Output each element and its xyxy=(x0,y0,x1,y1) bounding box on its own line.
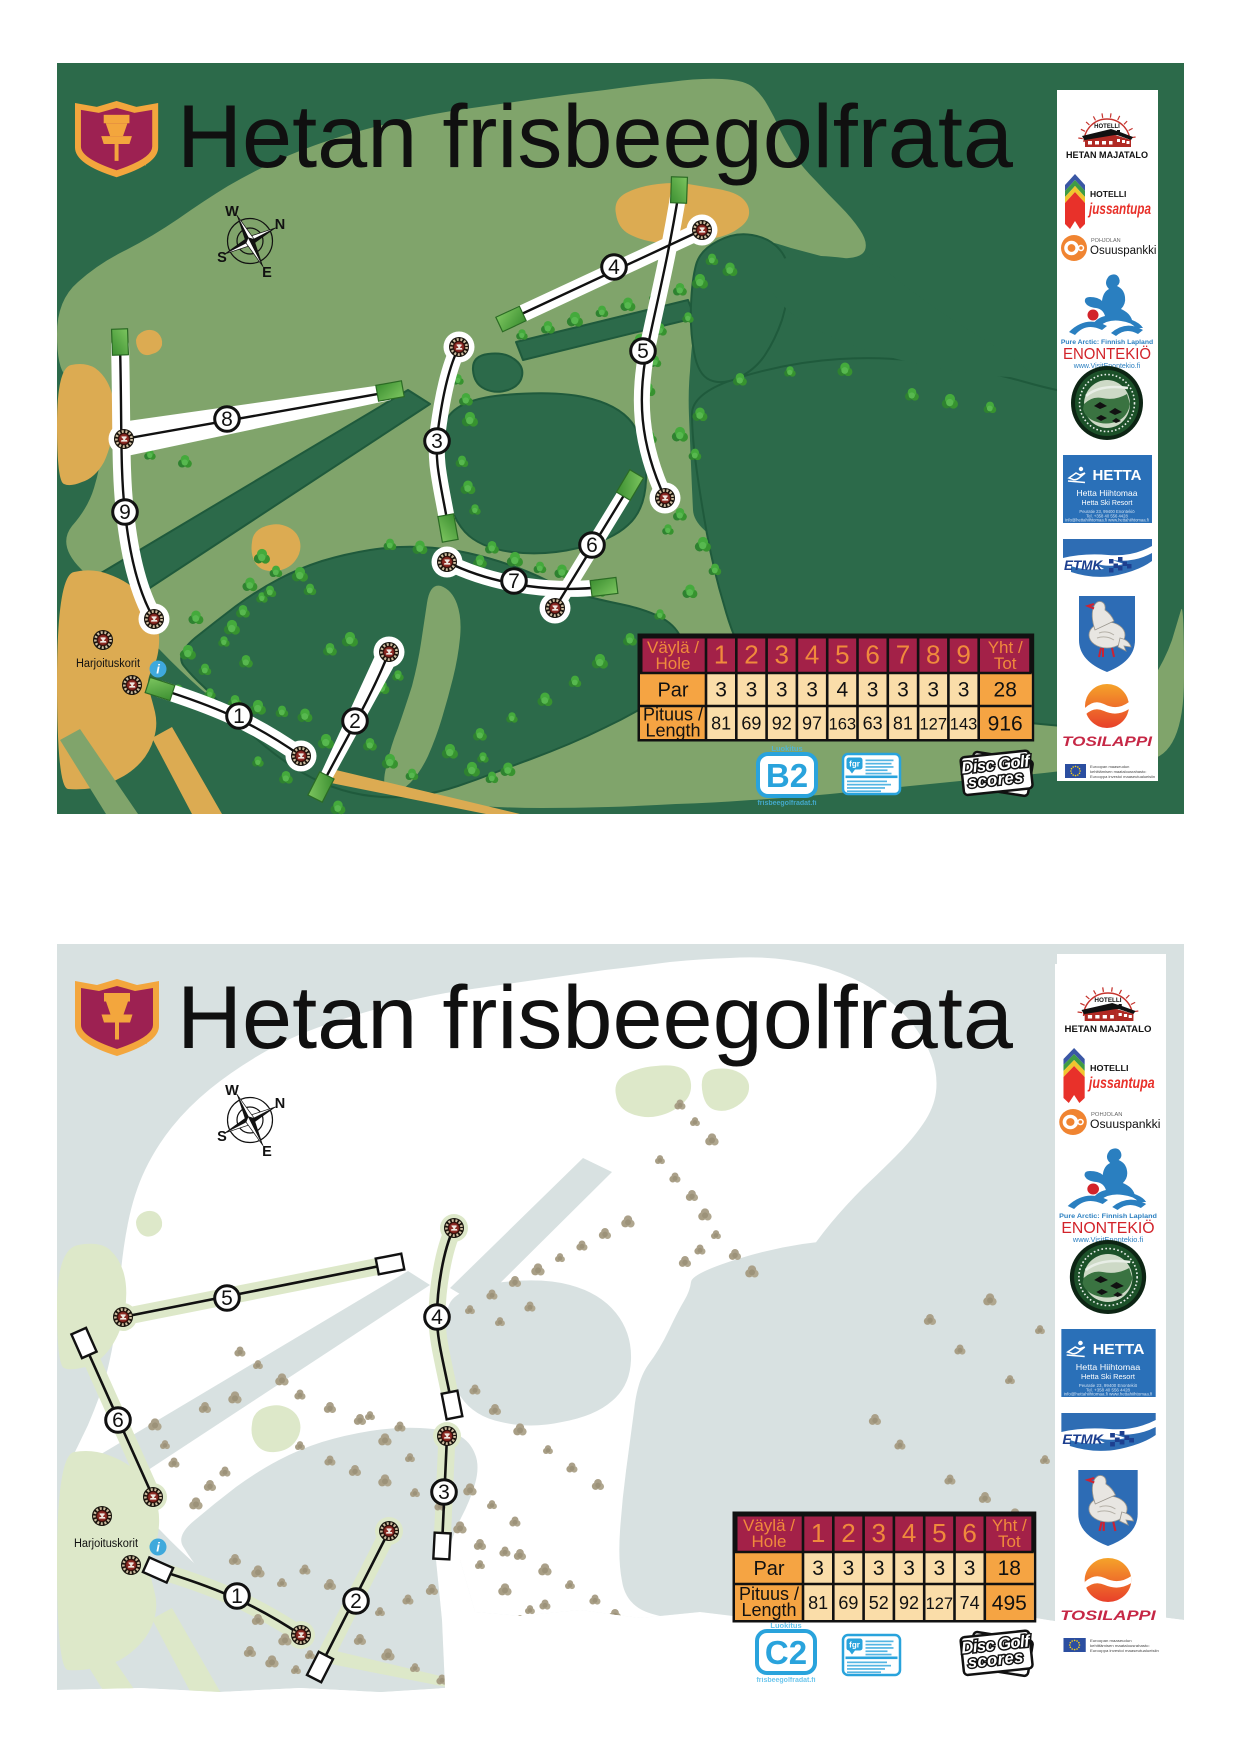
svg-text:916: 916 xyxy=(988,713,1023,736)
svg-text:Length: Length xyxy=(741,1600,796,1620)
svg-text:18: 18 xyxy=(998,1557,1021,1580)
svg-text:Hetan frisbeegolfrata: Hetan frisbeegolfrata xyxy=(177,86,1013,186)
svg-text:3: 3 xyxy=(776,679,788,702)
svg-text:92: 92 xyxy=(772,714,792,734)
svg-text:3: 3 xyxy=(431,430,443,453)
svg-text:3: 3 xyxy=(903,1557,915,1580)
svg-text:2: 2 xyxy=(841,1518,855,1548)
svg-text:6: 6 xyxy=(586,534,598,557)
svg-text:4: 4 xyxy=(431,1306,443,1329)
svg-text:69: 69 xyxy=(741,714,761,734)
svg-text:9: 9 xyxy=(119,501,131,524)
svg-text:3: 3 xyxy=(746,679,758,702)
svg-text:28: 28 xyxy=(994,679,1017,702)
svg-text:4: 4 xyxy=(805,640,819,670)
svg-text:4: 4 xyxy=(608,256,620,279)
svg-text:3: 3 xyxy=(806,679,818,702)
svg-text:3: 3 xyxy=(873,1557,885,1580)
svg-text:2: 2 xyxy=(349,710,361,733)
svg-text:3: 3 xyxy=(927,679,939,702)
svg-text:3: 3 xyxy=(897,679,909,702)
svg-text:3: 3 xyxy=(812,1557,824,1580)
svg-text:3: 3 xyxy=(872,1518,886,1548)
svg-text:Tot: Tot xyxy=(998,1532,1021,1551)
svg-text:92: 92 xyxy=(899,1593,919,1613)
svg-text:Tot: Tot xyxy=(994,654,1017,673)
svg-text:4: 4 xyxy=(837,679,849,702)
svg-text:B2: B2 xyxy=(766,757,808,794)
svg-text:3: 3 xyxy=(867,679,879,702)
svg-text:Par: Par xyxy=(753,1558,784,1580)
svg-text:Hetan frisbeegolfrata: Hetan frisbeegolfrata xyxy=(177,967,1013,1067)
svg-text:3: 3 xyxy=(964,1557,976,1580)
svg-text:Length: Length xyxy=(645,721,700,741)
svg-text:2: 2 xyxy=(744,640,758,670)
svg-text:Luokitus: Luokitus xyxy=(771,744,802,753)
svg-text:5: 5 xyxy=(637,340,649,363)
svg-text:143: 143 xyxy=(950,716,978,734)
svg-text:63: 63 xyxy=(863,714,883,734)
svg-text:fgr: fgr xyxy=(849,1641,860,1650)
svg-text:81: 81 xyxy=(808,1593,828,1613)
svg-text:1: 1 xyxy=(233,705,245,728)
svg-text:Harjoituskorit: Harjoituskorit xyxy=(74,1538,139,1550)
svg-text:Par: Par xyxy=(657,680,688,702)
svg-text:Hole: Hole xyxy=(752,1532,787,1551)
svg-text:5: 5 xyxy=(221,1287,233,1310)
svg-text:127: 127 xyxy=(926,1595,954,1613)
svg-text:Hole: Hole xyxy=(656,654,691,673)
svg-text:2: 2 xyxy=(350,1590,362,1613)
svg-text:1: 1 xyxy=(714,640,728,670)
svg-text:6: 6 xyxy=(112,1409,124,1432)
svg-text:3: 3 xyxy=(775,640,789,670)
svg-text:3: 3 xyxy=(715,679,727,702)
svg-text:81: 81 xyxy=(711,714,731,734)
svg-text:3: 3 xyxy=(934,1557,946,1580)
svg-text:C2: C2 xyxy=(765,1634,807,1671)
svg-text:3: 3 xyxy=(843,1557,855,1580)
svg-text:52: 52 xyxy=(869,1593,889,1613)
svg-text:69: 69 xyxy=(838,1593,858,1613)
svg-text:Luokitus: Luokitus xyxy=(770,1621,801,1630)
svg-text:97: 97 xyxy=(802,714,822,734)
svg-text:8: 8 xyxy=(926,640,940,670)
svg-text:74: 74 xyxy=(960,1593,980,1613)
svg-text:81: 81 xyxy=(893,714,913,734)
svg-text:fgr: fgr xyxy=(849,760,860,769)
svg-text:8: 8 xyxy=(221,408,233,431)
svg-text:7: 7 xyxy=(508,570,520,593)
svg-text:Harjoituskorit: Harjoituskorit xyxy=(76,658,141,670)
svg-text:frisbeegolfradat.fi: frisbeegolfradat.fi xyxy=(756,1677,815,1684)
svg-text:9: 9 xyxy=(956,640,970,670)
svg-text:7: 7 xyxy=(896,640,910,670)
svg-text:5: 5 xyxy=(835,640,849,670)
svg-text:6: 6 xyxy=(962,1518,976,1548)
svg-text:3: 3 xyxy=(958,679,970,702)
svg-text:495: 495 xyxy=(992,1592,1027,1615)
svg-text:5: 5 xyxy=(932,1518,946,1548)
svg-text:4: 4 xyxy=(902,1518,916,1548)
svg-text:3: 3 xyxy=(438,1481,450,1504)
svg-text:163: 163 xyxy=(829,716,857,734)
svg-text:1: 1 xyxy=(811,1518,825,1548)
svg-text:127: 127 xyxy=(919,716,947,734)
svg-text:6: 6 xyxy=(865,640,879,670)
svg-text:1: 1 xyxy=(231,1585,243,1608)
svg-text:frisbeegolfradat.fi: frisbeegolfradat.fi xyxy=(757,800,816,807)
